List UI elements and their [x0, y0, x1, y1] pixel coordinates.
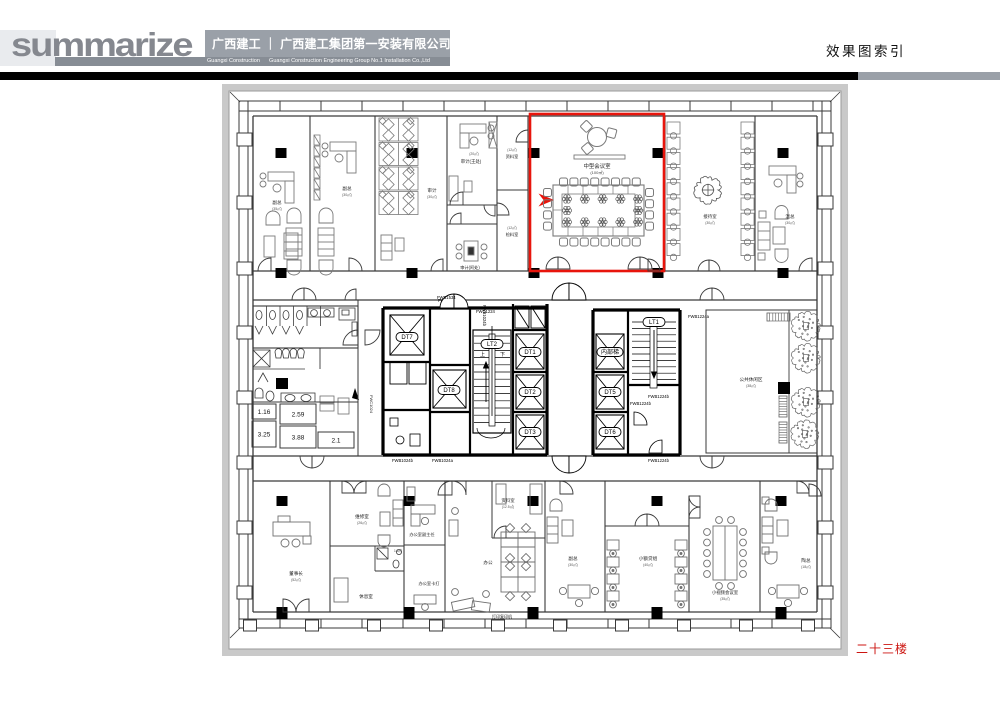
svg-text:DT7: DT7 — [401, 335, 413, 341]
svg-text:内部梯: 内部梯 — [601, 348, 619, 356]
svg-text:打印复印机: 打印复印机 — [492, 613, 512, 619]
svg-text:公共休闲区: 公共休闲区 — [740, 376, 763, 383]
svg-text:(30㎡): (30㎡) — [785, 220, 795, 225]
svg-text:(52㎡): (52㎡) — [291, 577, 301, 582]
svg-text:(38㎡): (38㎡) — [746, 383, 756, 388]
svg-text:(35㎡): (35㎡) — [272, 206, 282, 211]
svg-text:DT3: DT3 — [524, 430, 536, 436]
svg-text:1.16: 1.16 — [258, 409, 271, 416]
svg-text:FWB1224b: FWB1224b — [630, 401, 652, 406]
svg-text:(12.5㎡): (12.5㎡) — [502, 504, 514, 509]
svg-text:(35㎡): (35㎡) — [720, 596, 729, 601]
svg-text:DT2: DT2 — [524, 390, 536, 396]
svg-text:1.5㎡: 1.5㎡ — [394, 548, 402, 553]
svg-text:中型会议室: 中型会议室 — [584, 162, 612, 170]
svg-text:董事长: 董事长 — [289, 570, 303, 577]
svg-text:陶总: 陶总 — [801, 557, 811, 564]
svg-text:资料室: 资料室 — [506, 153, 519, 160]
svg-text:(30㎡): (30㎡) — [427, 194, 437, 199]
svg-text:DT5: DT5 — [604, 390, 616, 396]
svg-text:办公室卡打: 办公室卡打 — [419, 580, 441, 587]
svg-text:2.1: 2.1 — [331, 437, 340, 444]
svg-text:审计: 审计 — [427, 187, 437, 194]
svg-text:(12㎡): (12㎡) — [507, 147, 516, 152]
svg-text:资料室: 资料室 — [501, 497, 515, 504]
svg-text:LT2: LT2 — [487, 342, 498, 348]
svg-text:下: 下 — [500, 352, 505, 358]
svg-text:2.59: 2.59 — [292, 411, 305, 418]
svg-text:温总: 温总 — [785, 213, 795, 220]
svg-text:DT1: DT1 — [524, 350, 536, 356]
svg-text:审计(王处): 审计(王处) — [461, 158, 482, 165]
svg-text:FWB1024b: FWB1024b — [392, 458, 414, 463]
svg-text:副总: 副总 — [342, 185, 352, 192]
svg-text:FWB1534: FWB1534 — [437, 295, 456, 300]
svg-text:FWB1224b: FWB1224b — [648, 394, 670, 399]
svg-text:上: 上 — [480, 351, 485, 358]
svg-text:FWB1024a: FWB1024a — [432, 458, 454, 463]
svg-text:(30㎡): (30㎡) — [342, 192, 352, 197]
svg-text:小视频会议室: 小视频会议室 — [712, 589, 739, 596]
svg-text:检料室: 检料室 — [506, 231, 519, 238]
svg-text:维修室: 维修室 — [355, 513, 369, 520]
svg-text:(100㎡): (100㎡) — [590, 169, 604, 175]
svg-text:3.25: 3.25 — [258, 431, 271, 438]
svg-text:LT1: LT1 — [649, 320, 660, 326]
svg-text:FWC1024: FWC1024 — [369, 395, 374, 414]
svg-text:FWB1024b: FWB1024b — [482, 305, 487, 327]
svg-text:(20㎡): (20㎡) — [469, 151, 478, 156]
svg-text:接待室: 接待室 — [703, 213, 717, 220]
svg-text:(26㎡): (26㎡) — [357, 520, 367, 525]
svg-text:3.88: 3.88 — [292, 434, 305, 441]
svg-text:(18㎡): (18㎡) — [801, 564, 811, 569]
svg-text:DT6: DT6 — [604, 430, 616, 436]
svg-text:副总: 副总 — [272, 199, 282, 206]
svg-text:DT8: DT8 — [443, 388, 455, 394]
svg-text:FWB1224b: FWB1224b — [648, 458, 670, 463]
svg-text:副总: 副总 — [568, 555, 578, 562]
svg-text:(30㎡): (30㎡) — [568, 562, 578, 567]
svg-text:小额贷组: 小额贷组 — [639, 555, 658, 562]
svg-text:审计(阿处): 审计(阿处) — [460, 264, 480, 271]
svg-text:办公室副主任: 办公室副主任 — [409, 531, 434, 538]
svg-text:休息室: 休息室 — [359, 593, 373, 600]
svg-text:(40㎡): (40㎡) — [643, 562, 653, 567]
svg-text:办公: 办公 — [483, 559, 493, 566]
svg-text:(12㎡): (12㎡) — [507, 225, 516, 230]
svg-text:(30㎡): (30㎡) — [705, 220, 714, 225]
